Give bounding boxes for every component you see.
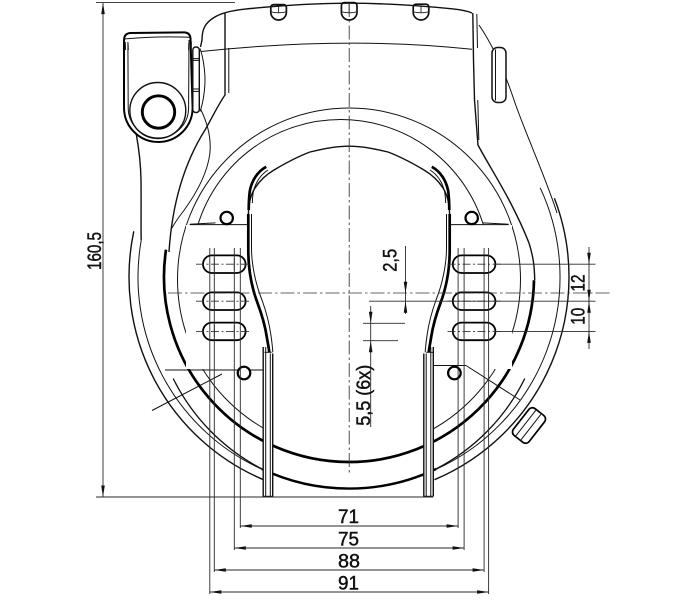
svg-text:71: 71 <box>338 507 359 528</box>
svg-text:88: 88 <box>338 552 360 573</box>
svg-text:5,5 (6x): 5,5 (6x) <box>354 365 375 426</box>
svg-text:160,5: 160,5 <box>85 232 106 270</box>
svg-text:10: 10 <box>569 308 590 325</box>
svg-text:91: 91 <box>338 574 359 595</box>
svg-text:2,5: 2,5 <box>381 249 402 272</box>
svg-text:75: 75 <box>338 530 359 551</box>
svg-text:12: 12 <box>569 275 590 292</box>
